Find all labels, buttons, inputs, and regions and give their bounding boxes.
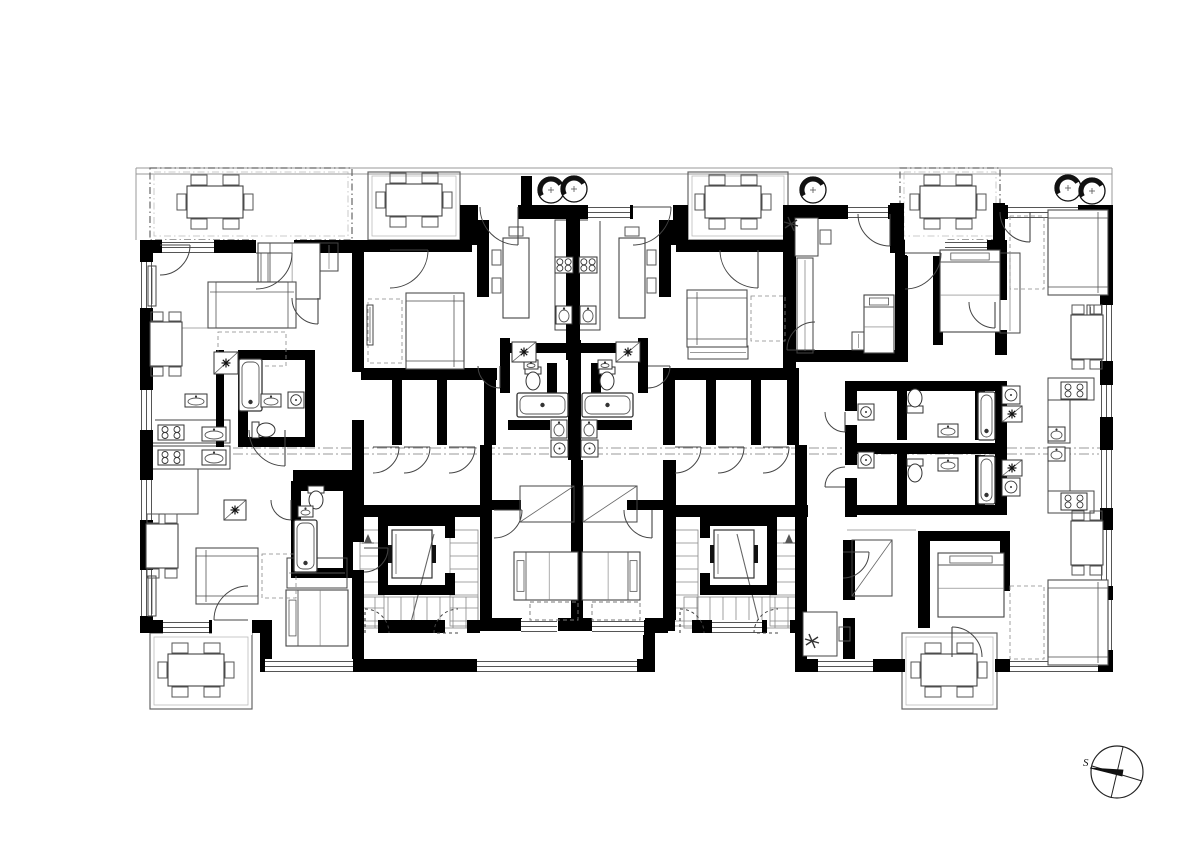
wall-segment [352, 420, 364, 542]
chair [177, 194, 186, 210]
chair [762, 194, 771, 210]
door-arc [390, 250, 428, 288]
wall-segment [480, 445, 492, 631]
sink-faucet [588, 421, 590, 423]
sink-faucet [213, 428, 215, 430]
wall-segment [918, 531, 1008, 541]
dining-table [187, 186, 243, 218]
bed [286, 590, 348, 646]
stove-icon [1061, 493, 1087, 510]
dining-table [146, 524, 178, 568]
chair [924, 219, 940, 229]
toilet-icon [908, 464, 922, 482]
bathtub-drain [984, 429, 988, 433]
bathtub-drain [605, 403, 609, 407]
chair [1072, 360, 1084, 369]
chair [509, 227, 523, 236]
wall-segment [293, 470, 353, 482]
door-arc [494, 510, 522, 538]
chair [925, 687, 941, 697]
chair [741, 219, 757, 229]
wall-segment [787, 368, 799, 445]
door-arc [825, 412, 845, 432]
door-arc [449, 447, 475, 473]
chair [924, 175, 940, 185]
balcony-inner-line [154, 172, 348, 236]
chair [957, 687, 973, 697]
door-arc [720, 250, 758, 288]
wall-segment [895, 253, 908, 362]
sofa [208, 282, 296, 328]
chair [158, 662, 167, 678]
wall-segment [392, 380, 402, 445]
sink-faucet [563, 307, 565, 309]
wall-segment [663, 368, 799, 380]
sink-faucet [558, 421, 560, 423]
chair [223, 175, 239, 185]
wall-segment [445, 516, 455, 538]
washing-machine-dot [865, 459, 867, 461]
chair [172, 687, 188, 697]
wall-segment [700, 516, 710, 538]
chair [376, 192, 385, 208]
chair [191, 175, 207, 185]
chair [977, 194, 986, 210]
elevator-car [392, 530, 432, 578]
dining-table [386, 184, 442, 216]
door-arc [718, 447, 744, 473]
wall-segment [897, 445, 907, 505]
wall-segment [645, 618, 675, 631]
wall-segment [305, 350, 315, 447]
chair [422, 217, 438, 227]
washing-machine-dot [865, 411, 867, 413]
sink-faucet [604, 361, 606, 363]
toilet-icon [526, 372, 540, 390]
chair [695, 194, 704, 210]
wall-segment [467, 620, 480, 633]
chair [741, 175, 757, 185]
desk [803, 612, 837, 656]
toilet-icon [908, 389, 922, 407]
desk-chair [820, 230, 831, 244]
sink-faucet [1055, 448, 1057, 450]
compass-label: S [1083, 757, 1089, 769]
door-arc [373, 447, 399, 473]
chair [910, 194, 919, 210]
wall-segment [676, 240, 795, 252]
door-arc [763, 447, 789, 473]
chair [443, 192, 452, 208]
dining-table [920, 186, 976, 218]
chair [709, 219, 725, 229]
chair [169, 312, 181, 321]
wall-segment [484, 368, 496, 445]
wardrobe [530, 602, 578, 620]
chair [1072, 305, 1084, 314]
chair [925, 643, 941, 653]
chair [492, 250, 501, 265]
stair-cut-line [410, 534, 434, 626]
elevator-guide-rail [388, 545, 392, 563]
washing-machine-dot [1010, 486, 1012, 488]
wardrobe-diagonal [852, 540, 892, 596]
wall-segment [843, 540, 855, 600]
bed [864, 295, 894, 353]
chair [709, 175, 725, 185]
wall-segment [995, 330, 1007, 355]
chair [225, 662, 234, 678]
wall-segment [437, 380, 447, 445]
sink-faucet [1055, 428, 1057, 430]
rug [1010, 586, 1044, 659]
stove-icon [1061, 382, 1087, 399]
sofa [1048, 580, 1108, 665]
door-opening [633, 204, 673, 220]
sink-faucet [213, 451, 215, 453]
wall-segment [352, 240, 364, 372]
sofa [196, 548, 258, 604]
wall-segment [706, 380, 716, 445]
door-arc [825, 467, 845, 487]
door-opening [212, 619, 252, 635]
sink-faucet [587, 307, 589, 309]
sink-faucet [947, 425, 949, 427]
wall-segment [700, 516, 777, 526]
chair [1072, 566, 1084, 575]
wall-segment [378, 516, 455, 526]
chair [647, 278, 656, 293]
chair [957, 643, 973, 653]
chair [911, 662, 920, 678]
elevator-guide-rail [432, 545, 436, 563]
rug [751, 296, 785, 341]
sofa [406, 293, 464, 369]
stove-icon [158, 425, 184, 440]
wall-segment [890, 203, 904, 253]
wall-segment [751, 380, 761, 445]
bathtub-drain [540, 403, 544, 407]
desk [795, 218, 818, 256]
wall-segment [627, 500, 665, 510]
door-arc [675, 447, 701, 473]
wall-segment [668, 505, 808, 517]
sink-faucet [270, 395, 272, 397]
wall-segment [918, 531, 930, 628]
chair [625, 227, 639, 236]
washing-machine-dot [295, 399, 297, 401]
chair [223, 219, 239, 229]
sofa [687, 290, 747, 347]
chair [956, 175, 972, 185]
chair [169, 367, 181, 376]
dining-table [168, 654, 224, 686]
wall-segment [352, 620, 364, 633]
washing-machine-dot [559, 448, 561, 450]
toilet-icon [257, 423, 275, 437]
wall-segment [700, 585, 777, 595]
dining-table [705, 186, 761, 218]
chair [244, 194, 253, 210]
wall-segment [568, 340, 581, 460]
dining-table [1071, 521, 1103, 565]
door-arc [271, 500, 291, 520]
bathtub-drain [984, 493, 988, 497]
elevator-car [714, 530, 754, 578]
wardrobe-diagonal [520, 486, 574, 522]
elevator-guide-rail [754, 545, 758, 563]
wardrobe [592, 602, 640, 620]
wall-segment [361, 368, 497, 380]
wall-segment [795, 445, 807, 620]
sink-faucet [947, 459, 949, 461]
wall-segment [845, 505, 1007, 515]
wall-segment [521, 176, 532, 207]
chair [204, 643, 220, 653]
washing-machine-dot [589, 448, 591, 450]
wall-segment [663, 460, 676, 620]
wall-segment [352, 505, 492, 517]
toilet-icon [600, 372, 614, 390]
kitchen-counter [152, 469, 198, 514]
sink-faucet [195, 395, 197, 397]
chair [172, 643, 188, 653]
chair [647, 250, 656, 265]
bathtub-drain [248, 400, 252, 404]
dining-table [1071, 315, 1103, 359]
chair [165, 569, 177, 578]
dining-table [150, 322, 182, 366]
wall-segment [480, 618, 522, 631]
wall-segment [897, 381, 907, 440]
floor-plan-page: S [0, 0, 1191, 842]
wall-segment [378, 585, 455, 595]
elevator-guide-rail [710, 545, 714, 563]
kitchen-table [619, 238, 645, 318]
chair [390, 217, 406, 227]
chair [191, 219, 207, 229]
wall-segment [500, 338, 510, 393]
door-opening [478, 204, 518, 220]
wall-segment [547, 363, 557, 395]
bathtub-drain [303, 561, 307, 565]
door-arc [404, 447, 430, 473]
kitchen-table [503, 238, 529, 318]
floor-plan-svg: S [0, 0, 1191, 842]
chair [492, 278, 501, 293]
chair [204, 687, 220, 697]
sink-faucet [304, 507, 306, 509]
stove-icon [158, 450, 184, 465]
balcony-outline [150, 168, 352, 240]
sofa [1048, 210, 1108, 295]
stair-up-arrow [785, 534, 793, 543]
washing-machine-dot [1010, 394, 1012, 396]
chair [956, 219, 972, 229]
chair [165, 514, 177, 523]
wall-segment [343, 481, 353, 578]
bed [582, 552, 640, 600]
door-arc [624, 510, 652, 538]
wall-segment [508, 420, 550, 430]
dining-table [921, 654, 977, 686]
wall-segment [566, 205, 580, 360]
stair-up-arrow [364, 534, 372, 543]
bed [514, 552, 578, 600]
wall-segment [352, 570, 364, 659]
bed [938, 553, 1004, 617]
wall-segment [767, 516, 777, 595]
wall-segment [845, 381, 1007, 391]
